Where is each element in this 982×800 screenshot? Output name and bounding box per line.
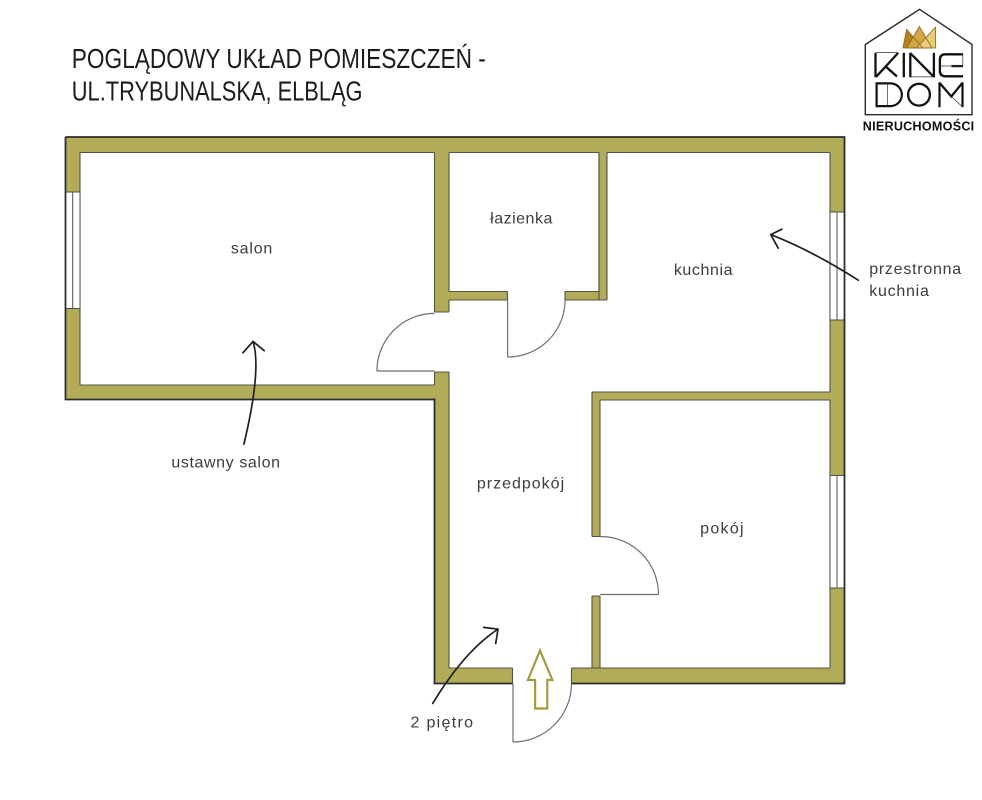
svg-text:POGLĄDOWY UKŁAD POMIESZCZEŃ -: POGLĄDOWY UKŁAD POMIESZCZEŃ - <box>72 43 486 75</box>
svg-text:przestronna: przestronna <box>869 261 962 278</box>
svg-text:kuchnia: kuchnia <box>869 283 929 300</box>
svg-text:2 piętro: 2 piętro <box>411 714 475 731</box>
svg-text:NIERUCHOMOŚCI: NIERUCHOMOŚCI <box>863 119 975 134</box>
svg-text:UL.TRYBUNALSKA, ELBLĄG: UL.TRYBUNALSKA, ELBLĄG <box>72 76 363 107</box>
svg-text:salon: salon <box>231 241 273 258</box>
svg-text:pokój: pokój <box>700 520 745 537</box>
svg-text:kuchnia: kuchnia <box>674 262 733 279</box>
svg-text:ustawny salon: ustawny salon <box>171 454 280 471</box>
svg-text:łazienka: łazienka <box>490 211 553 228</box>
svg-text:przedpokój: przedpokój <box>477 475 565 492</box>
